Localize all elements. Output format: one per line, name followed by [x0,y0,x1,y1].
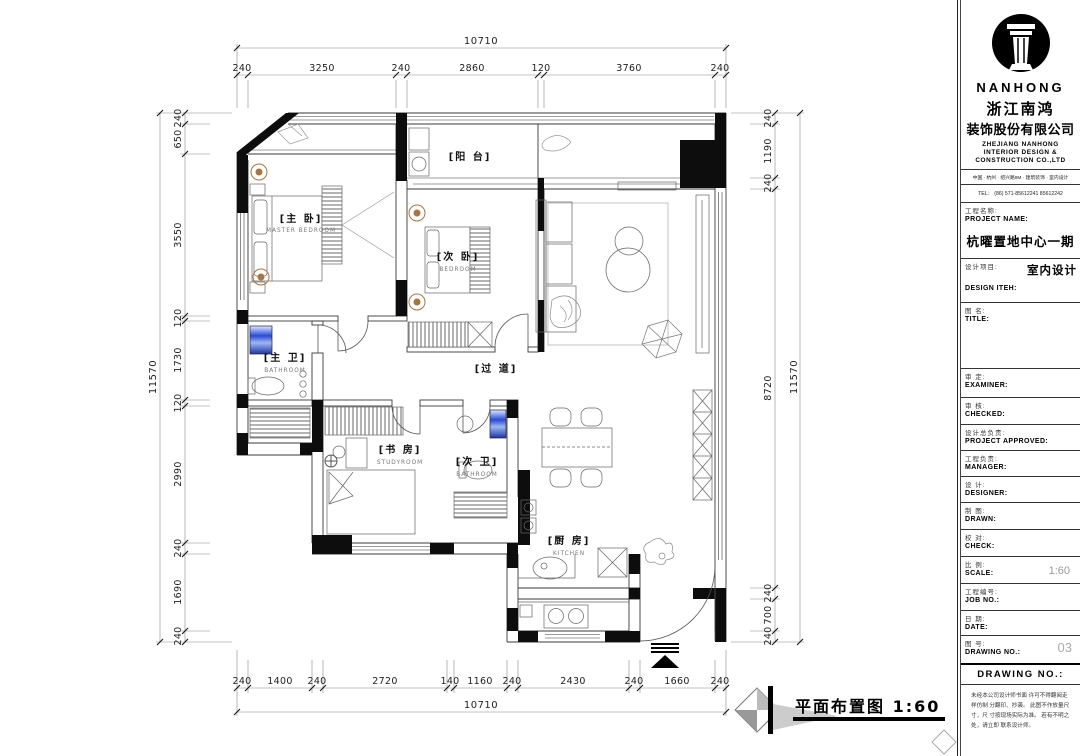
field-label-cn: 工程编号: [965,586,1076,596]
field-scale: 比 例: SCALE: 1:60 [961,556,1080,583]
dim-bottom-7: 2430 [560,676,585,687]
dim-bottom-8: 240 [624,676,643,687]
project-name-value: 杭曜置地中心一期 [965,231,1076,250]
dim-left-9: 240 [173,626,184,645]
field-label-en: JOB NO.: [965,597,1076,604]
field-label-en: PROJECT NAME: [965,216,1076,223]
field-checked: 审 核: CHECKED: [961,397,1080,424]
dim-top-3: 2860 [459,63,484,74]
field-label-en: PROJECT APPROVED: [965,438,1076,445]
dim-bottom-overall: 10710 [464,700,498,711]
field-label-cn: 制 图: [965,505,1076,515]
field-label-en: EXAMINER: [965,382,1076,389]
dim-left-7: 240 [173,538,184,557]
field-label-cn: 工程负责: [965,453,1076,463]
company-name-en-3: CONSTRUCTION CO.,LTD [961,157,1080,165]
dim-bottom-6: 240 [502,676,521,687]
company-tel: TEL： (86) 571-85612241 85612242 [961,185,1080,202]
scale-value: 1:60 [1049,565,1070,577]
dim-left-6: 2990 [173,461,184,486]
dim-top-2: 240 [391,63,410,74]
company-address: 中国 · 杭州 · 绍兴路9M · 建筑装饰 · 室内设计 [961,170,1080,185]
drawing-no-header: DRAWING NO.: [961,663,1080,684]
field-title: 图 名: TITLE: [961,302,1080,368]
field-drawing-no: 图 号: DRAWING NO.: 03 [961,635,1080,663]
entry-arrow-icon [651,644,679,668]
caption-logo-bar [768,686,773,734]
field-label-cn: 审 定: [965,371,1076,381]
dim-right-overall: 11570 [789,360,800,394]
dim-right-5: 700 [763,605,774,624]
field-label-cn: 审 核: [965,400,1076,410]
room-label-master-cn: [主 卧] [280,212,323,225]
dim-bottom-5: 1160 [467,676,492,687]
room-label-kitchen-en: KITCHEN [553,551,585,557]
field-check: 校 对: CHECK: [961,529,1080,556]
company-name-en-2: INTERIOR DESIGN & [961,149,1080,157]
dim-right-1: 1190 [763,138,774,163]
plan-caption: 平面布置图 1:60 [795,697,940,716]
dim-left-4: 1730 [173,347,184,372]
dim-top-6: 240 [710,63,729,74]
title-block: NANHONG 浙江南鸿 装饰股份有限公司 ZHEJIANG NANHONG I… [957,0,1080,756]
room-label-secondbath-cn: [次 卫] [456,455,499,468]
field-label-en: DESIGN ITEH: [965,285,1076,292]
dim-top-overall: 10710 [464,36,498,47]
field-label-en: DRAWN: [965,516,1076,523]
dim-top-1: 3250 [309,63,334,74]
walls-thin [237,113,726,642]
field-label-cn: 图 名: [965,305,1076,315]
field-project-approved: 设计总负责: PROJECT APPROVED: [961,424,1080,450]
dim-left-1: 650 [173,129,184,148]
brand-name: NANHONG [961,80,1080,95]
dim-left-0: 240 [173,108,184,127]
field-date: 日 期: DATE: [961,610,1080,635]
dim-bottom-1: 1400 [267,676,292,687]
dim-right-4: 240 [763,583,774,602]
field-designer: 设 计: DESIGNER: [961,476,1080,502]
company-name-en-1: ZHEJIANG NANHONG [961,141,1080,149]
dim-right-3: 8720 [763,375,774,400]
dim-bottom-0: 240 [232,676,251,687]
dim-left-8: 1690 [173,579,184,604]
room-label-study-en: STUDYROOM [377,460,423,466]
nanhong-column-icon [990,12,1052,74]
dim-bottom-4: 140 [440,676,459,687]
dim-top-4: 120 [531,63,550,74]
room-label-balcony-cn: [阳 台] [449,150,492,163]
company-name-cn-1: 浙江南鸿 [961,98,1080,119]
field-label-cn: 设 计: [965,479,1076,489]
room-label-masterbath-cn: [主 卫] [264,351,307,364]
dim-right-0: 240 [763,108,774,127]
room-label-study-cn: [书 房] [379,443,422,456]
watermark-diamond [932,730,956,754]
room-label-corridor-cn: [过 道] [475,362,518,375]
field-label-en: MANAGER: [965,464,1076,471]
room-label-second-cn: [次 卧] [437,250,480,263]
drawing-no-value: 03 [1058,640,1072,655]
room-label-secondbath-en: BATHROOM [456,472,498,478]
field-job-no: 工程编号: JOB NO.: [961,583,1080,610]
field-label-en: DESIGNER: [965,490,1076,497]
dim-left-5: 120 [173,393,184,412]
room-label-second-en: BEDROOM [439,267,476,273]
field-project-name: 工程名称: PROJECT NAME: 杭曜置地中心一期 [961,202,1080,258]
field-label-cn: 日 期: [965,613,1076,623]
field-label-en: CHECKED: [965,411,1076,418]
field-label-cn: 设计总负责: [965,427,1076,437]
field-label-cn: 校 对: [965,532,1076,542]
field-label-cn: 工程名称: [965,205,1076,215]
field-label-en: TITLE: [965,316,1076,323]
dim-bottom-2: 240 [307,676,326,687]
field-examiner: 审 定: EXAMINER: [961,368,1080,397]
dim-left-overall: 11570 [148,360,159,394]
dimension-text-top: 10710 240 3250 240 2860 120 3760 240 [232,36,729,74]
field-label-en: DATE: [965,624,1076,631]
company-name-cn-2: 装饰股份有限公司 [961,119,1080,138]
floor-plan-area: [主 卧] MASTER BEDROOM [阳 台] [次 卧] BEDROOM… [0,0,957,756]
dim-bottom-3: 2720 [372,676,397,687]
dimension-text-right: 11570 240 1190 240 8720 240 700 240 [763,108,800,645]
company-logo [961,0,1080,80]
drawing-sheet: [主 卧] MASTER BEDROOM [阳 台] [次 卧] BEDROOM… [0,0,1080,756]
dim-right-6: 240 [763,626,774,645]
dim-top-0: 240 [232,63,251,74]
field-drawn: 制 图: DRAWN: [961,502,1080,529]
room-label-master-en: MASTER BEDROOM [266,228,336,234]
floor-plan-svg: [主 卧] MASTER BEDROOM [阳 台] [次 卧] BEDROOM… [0,0,957,756]
dimension-text-bottom: 10710 240 1400 240 2720 140 1160 240 243… [232,676,729,711]
field-design-item: 设计项目: 室内设计 DESIGN ITEH: [961,258,1080,302]
design-item-value: 室内设计 [1027,262,1077,278]
caption-group: 平面布置图 1:60 [735,686,956,754]
dim-top-5: 3760 [616,63,641,74]
dim-bottom-9: 1660 [664,676,689,687]
dim-left-2: 3550 [173,222,184,247]
dimension-text-left: 11570 240 650 3550 120 1730 120 2990 240… [148,108,184,645]
dim-right-2: 240 [763,173,774,192]
room-label-kitchen-cn: [厨 房] [548,534,591,547]
disclaimer-text: 未经本公司设计师书面 许可不得翻阅走样仿制 分翻印、抄袭。 此图不作放量尺寸，尺… [961,684,1080,756]
field-label-en: CHECK: [965,543,1076,550]
dim-left-3: 120 [173,308,184,327]
room-label-masterbath-en: BATHROOM [264,368,306,374]
walls-black [237,113,726,642]
field-manager: 工程负责: MANAGER: [961,450,1080,476]
dim-bottom-10: 240 [710,676,729,687]
